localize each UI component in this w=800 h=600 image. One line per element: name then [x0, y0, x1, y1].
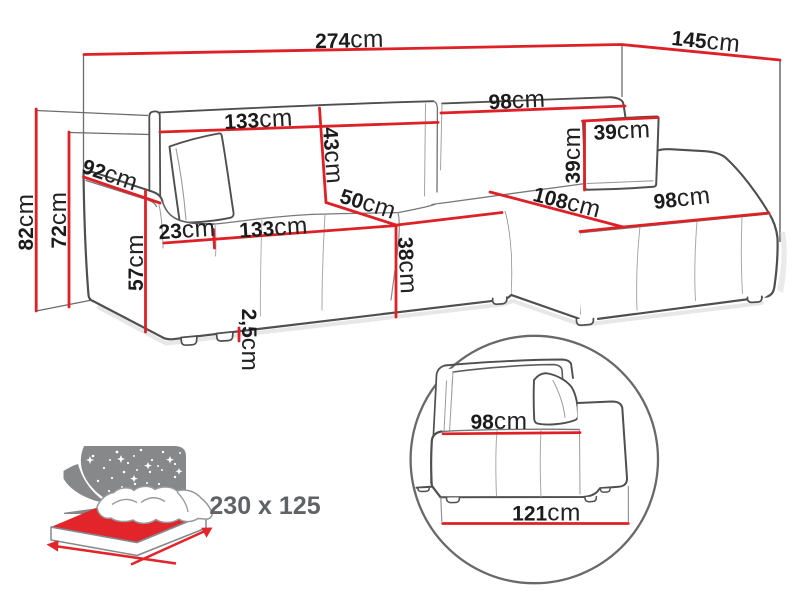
svg-text:39cm: 39cm	[559, 126, 586, 183]
svg-text:82cm: 82cm	[12, 193, 39, 250]
svg-text:230 x 125: 230 x 125	[209, 492, 320, 520]
svg-text:72cm: 72cm	[45, 191, 72, 248]
svg-text:98cm: 98cm	[470, 408, 527, 435]
svg-text:274cm: 274cm	[315, 26, 384, 54]
svg-text:98cm: 98cm	[488, 86, 546, 115]
svg-text:2,5cm: 2,5cm	[236, 309, 263, 372]
svg-text:39cm: 39cm	[593, 116, 651, 145]
svg-text:57cm: 57cm	[122, 234, 149, 291]
svg-text:121cm: 121cm	[512, 500, 581, 527]
